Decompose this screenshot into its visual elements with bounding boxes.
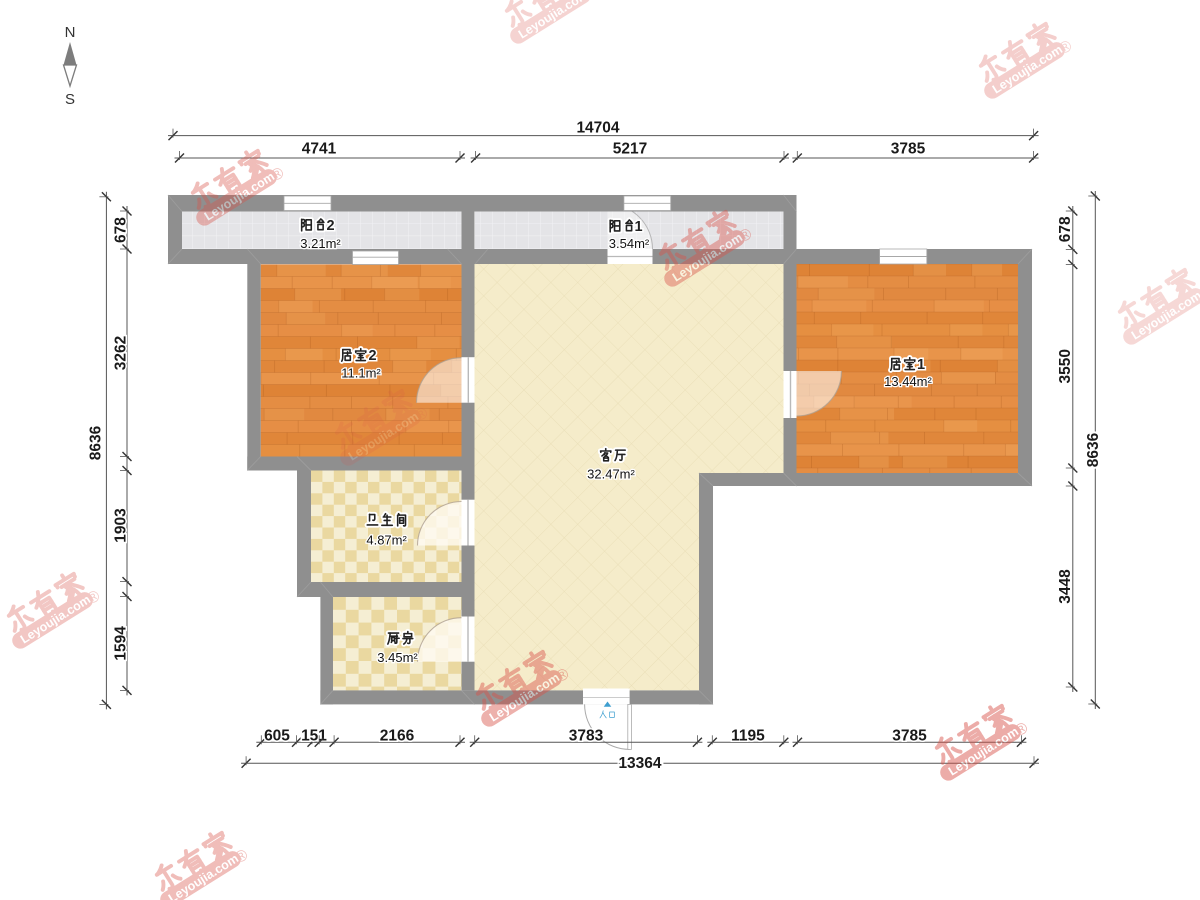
svg-text:11.1m²: 11.1m² — [341, 366, 381, 381]
svg-text:3448: 3448 — [1057, 569, 1074, 604]
svg-text:3783: 3783 — [569, 728, 604, 745]
svg-text:2: 2 — [368, 348, 376, 364]
svg-text:2166: 2166 — [380, 728, 415, 745]
svg-text:3550: 3550 — [1057, 349, 1074, 383]
svg-text:605: 605 — [264, 728, 290, 745]
svg-text:1: 1 — [917, 357, 925, 373]
svg-text:13.44m²: 13.44m² — [884, 374, 932, 389]
svg-text:678: 678 — [1057, 216, 1074, 242]
svg-text:3785: 3785 — [891, 141, 926, 158]
svg-text:32.47m²: 32.47m² — [587, 467, 635, 482]
svg-text:1594: 1594 — [113, 626, 130, 661]
svg-text:S: S — [65, 91, 75, 108]
svg-text:2: 2 — [326, 218, 334, 234]
svg-text:8636: 8636 — [88, 425, 105, 460]
svg-text:13364: 13364 — [618, 755, 661, 772]
svg-text:8636: 8636 — [1085, 432, 1102, 467]
svg-text:14704: 14704 — [576, 120, 619, 137]
svg-text:N: N — [65, 24, 76, 41]
svg-text:3.54m²: 3.54m² — [609, 236, 650, 251]
svg-text:1: 1 — [634, 219, 642, 235]
svg-text:4741: 4741 — [302, 141, 337, 158]
svg-text:3.21m²: 3.21m² — [300, 236, 341, 251]
svg-text:3785: 3785 — [892, 728, 927, 745]
svg-text:678: 678 — [113, 217, 130, 243]
svg-text:5217: 5217 — [613, 141, 647, 158]
svg-text:1903: 1903 — [113, 508, 130, 543]
svg-text:3.45m²: 3.45m² — [377, 650, 418, 665]
svg-text:3262: 3262 — [113, 336, 130, 370]
svg-text:1195: 1195 — [731, 728, 765, 745]
svg-text:4.87m²: 4.87m² — [366, 533, 407, 548]
